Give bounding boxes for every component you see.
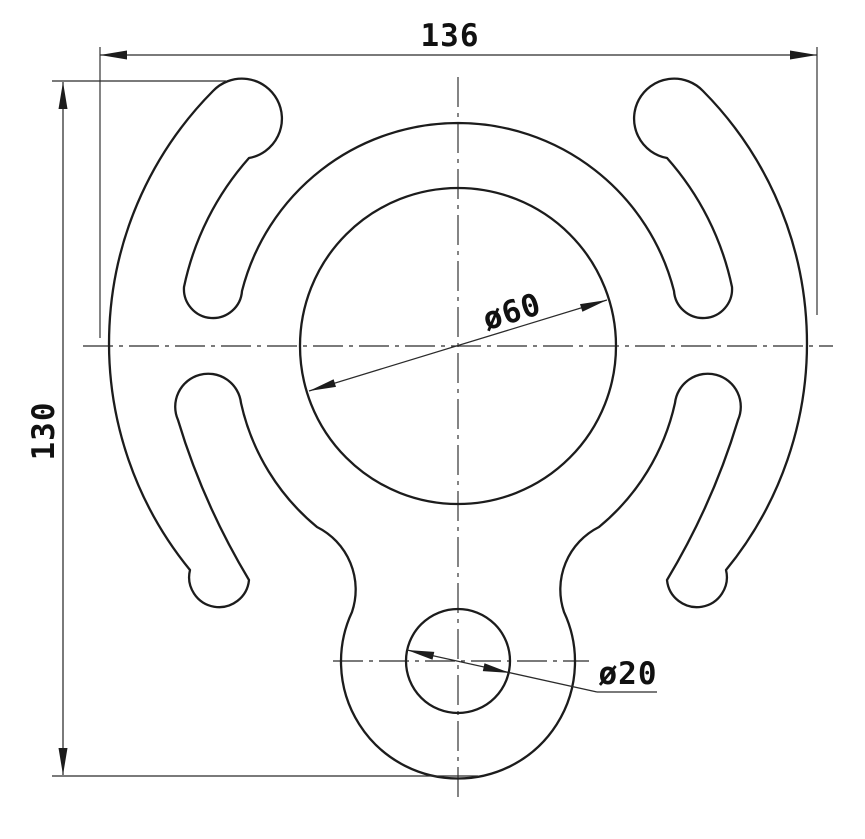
dim-hole-arrow-upleft	[407, 650, 434, 660]
dim-bore-arrow-right	[580, 300, 607, 312]
dim-width-arrow-right	[790, 51, 817, 60]
dim-overall-width: 136	[100, 18, 817, 60]
dim-width-label: 136	[421, 18, 480, 54]
part-drawing-svg: 136 130 ø60 ø20	[0, 0, 865, 839]
extension-lines	[52, 47, 817, 776]
dim-height-label: 130	[26, 402, 62, 461]
dim-hole-20: ø20	[407, 650, 658, 692]
dim-overall-height: 130	[26, 82, 68, 775]
dim-height-arrow-top	[59, 82, 68, 109]
dim-bore-arrow-left	[309, 379, 336, 391]
dim-bore-label: ø60	[479, 286, 546, 338]
centerlines	[83, 77, 833, 801]
dim-width-arrow-left	[100, 51, 127, 60]
dim-height-arrow-bottom	[59, 748, 68, 775]
dim-hole-arrow-downright	[483, 663, 510, 673]
dim-hole-label: ø20	[599, 656, 658, 692]
engineering-drawing-canvas: 136 130 ø60 ø20	[0, 0, 865, 839]
